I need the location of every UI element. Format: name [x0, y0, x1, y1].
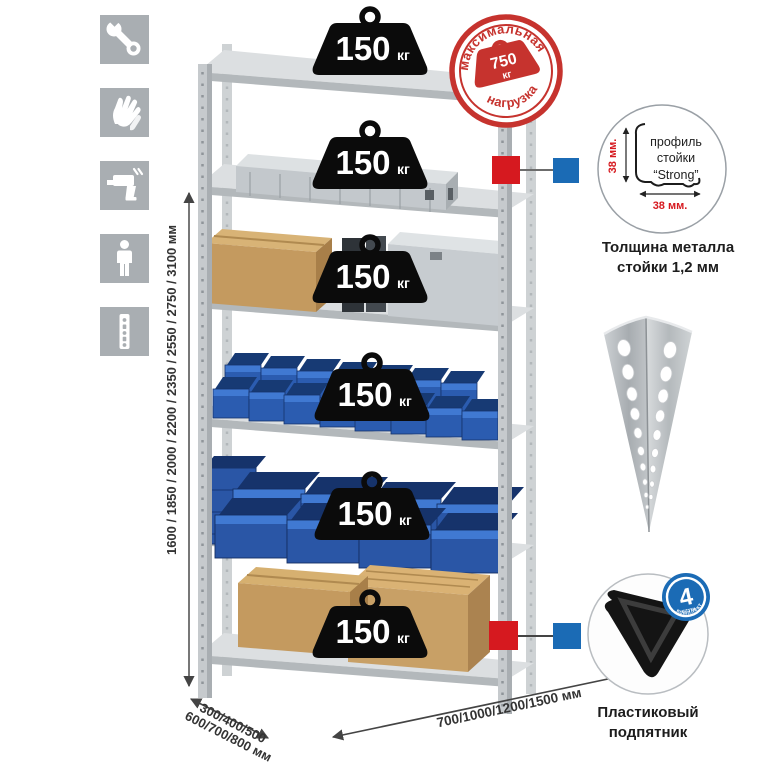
max-load-stamp: максимальная нагрузка 750 кг — [441, 6, 572, 137]
svg-text:кг: кг — [397, 161, 410, 177]
height-dimension-label: 1600 / 1850 / 2000 / 2200 / 2350 / 2550 … — [164, 225, 179, 555]
depth-dimension: 300/400/500 600/700/800 мм — [183, 696, 281, 765]
svg-text:кг: кг — [397, 630, 410, 646]
rack-illustration: 150 кг 150 кг 150 кг 150 кг 150 кг — [0, 0, 765, 765]
svg-text:кг: кг — [399, 512, 412, 528]
profile-dim-horizontal: 38 мм. — [653, 200, 688, 212]
red-marker-top — [492, 156, 520, 184]
blue-marker-top — [553, 158, 579, 183]
profile-dim-vertical: 38 мм. — [607, 139, 619, 174]
weight-value: 150 — [335, 30, 390, 67]
weight-icon-1: 150 кг — [313, 9, 428, 75]
red-marker-bottom — [489, 621, 518, 650]
svg-text:кг: кг — [399, 393, 412, 409]
product-infographic: 150 кг 150 кг 150 кг 150 кг 150 кг — [0, 0, 765, 765]
svg-text:150: 150 — [335, 613, 390, 650]
angle-post-image — [604, 317, 692, 532]
profile-label-1: профиль — [650, 135, 702, 149]
foot-caption-line2: подпятник — [543, 723, 753, 743]
svg-text:150: 150 — [335, 258, 390, 295]
weight-icon-2: 150 кг — [313, 123, 428, 189]
svg-text:150: 150 — [337, 376, 392, 413]
weight-unit: кг — [397, 47, 410, 63]
blue-marker-bottom — [553, 623, 581, 649]
foot-caption: Пластиковый подпятник — [543, 703, 753, 744]
foot-callout: 4 штуки в комплекте — [588, 569, 714, 694]
profile-caption: Толщина металла стойки 1,2 мм — [563, 238, 765, 279]
profile-label-2: стойки — [657, 151, 695, 165]
profile-callout: 38 мм. 38 мм. профиль стойки “Strong” — [598, 105, 726, 233]
profile-caption-line1: Толщина металла — [563, 238, 765, 258]
svg-text:кг: кг — [397, 275, 410, 291]
foot-caption-line1: Пластиковый — [543, 703, 753, 723]
front-left-post — [198, 64, 212, 698]
svg-text:150: 150 — [335, 144, 390, 181]
profile-label-3: “Strong” — [653, 168, 698, 182]
profile-caption-line2: стойки 1,2 мм — [563, 258, 765, 278]
height-dimension: 1600 / 1850 / 2000 / 2200 / 2350 / 2550 … — [164, 193, 189, 686]
svg-text:150: 150 — [337, 495, 392, 532]
